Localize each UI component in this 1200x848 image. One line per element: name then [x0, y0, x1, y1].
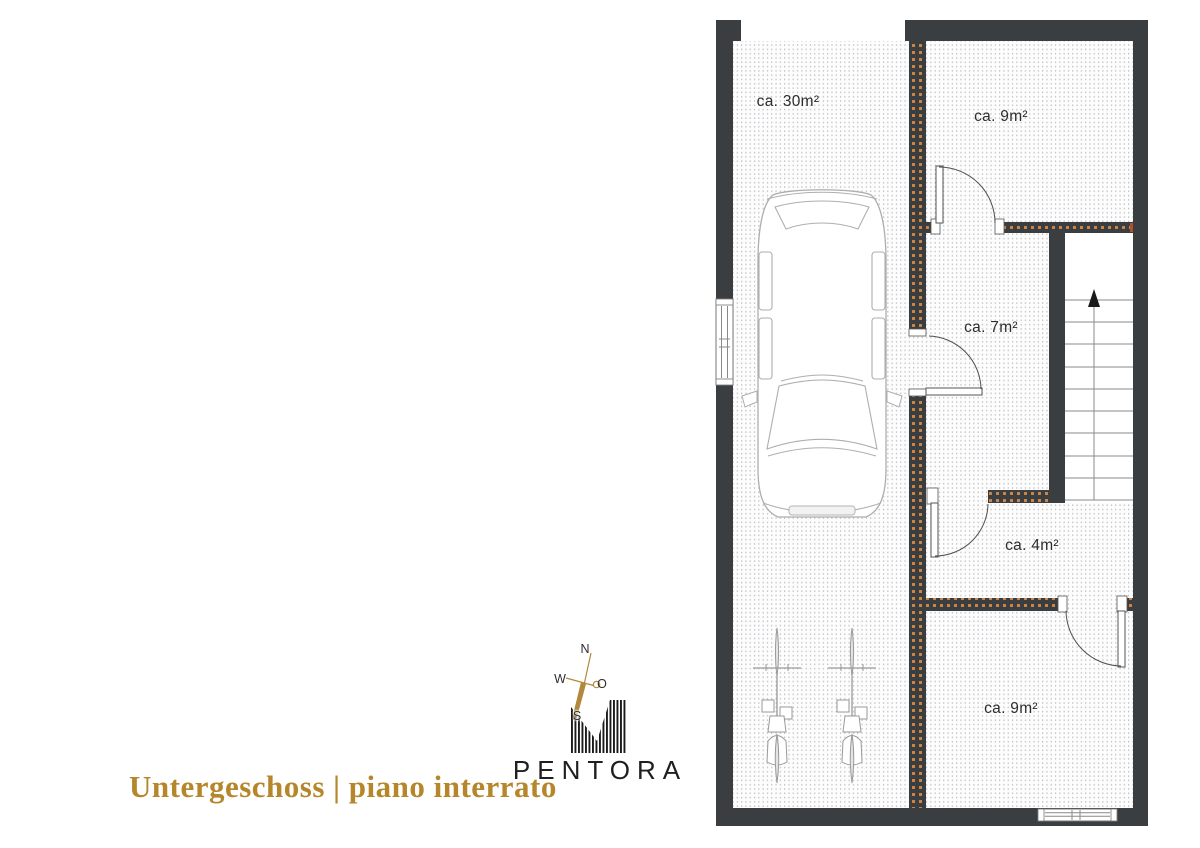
window-left — [716, 299, 733, 385]
door-leaf — [931, 503, 938, 557]
door-leaf — [926, 388, 982, 395]
staircase — [1065, 289, 1133, 500]
door-leaf — [936, 166, 943, 223]
wall-top — [905, 20, 1148, 41]
wall-right — [1133, 20, 1148, 826]
doorway-floor — [938, 490, 988, 503]
wall-left-upper — [716, 20, 733, 299]
doorway-floor — [936, 222, 996, 233]
doorway-floor — [909, 333, 926, 390]
floor-plan-canvas — [0, 0, 1200, 848]
stair-up-arrow-icon — [1088, 289, 1100, 307]
wall-cellar-small — [926, 598, 1058, 611]
wall-left-lower — [716, 385, 733, 808]
wall-cellar-small-stub — [1127, 598, 1133, 611]
wall-vertical-upper — [909, 41, 926, 333]
car-icon — [742, 190, 902, 517]
wall-stairwell — [1049, 232, 1065, 503]
wall-cellar-top — [996, 222, 1143, 233]
cellar-top-floor — [926, 41, 1133, 222]
wall-stair-bottom — [988, 490, 1052, 503]
hall-floor — [926, 233, 1050, 490]
door-leaf — [1118, 611, 1125, 667]
cellar-small-floor — [926, 503, 1133, 598]
window-bottom — [1038, 809, 1117, 821]
wall-vertical-lower — [909, 390, 926, 808]
cellar-bottom-floor — [926, 611, 1133, 808]
doorway-floor — [1066, 598, 1117, 611]
